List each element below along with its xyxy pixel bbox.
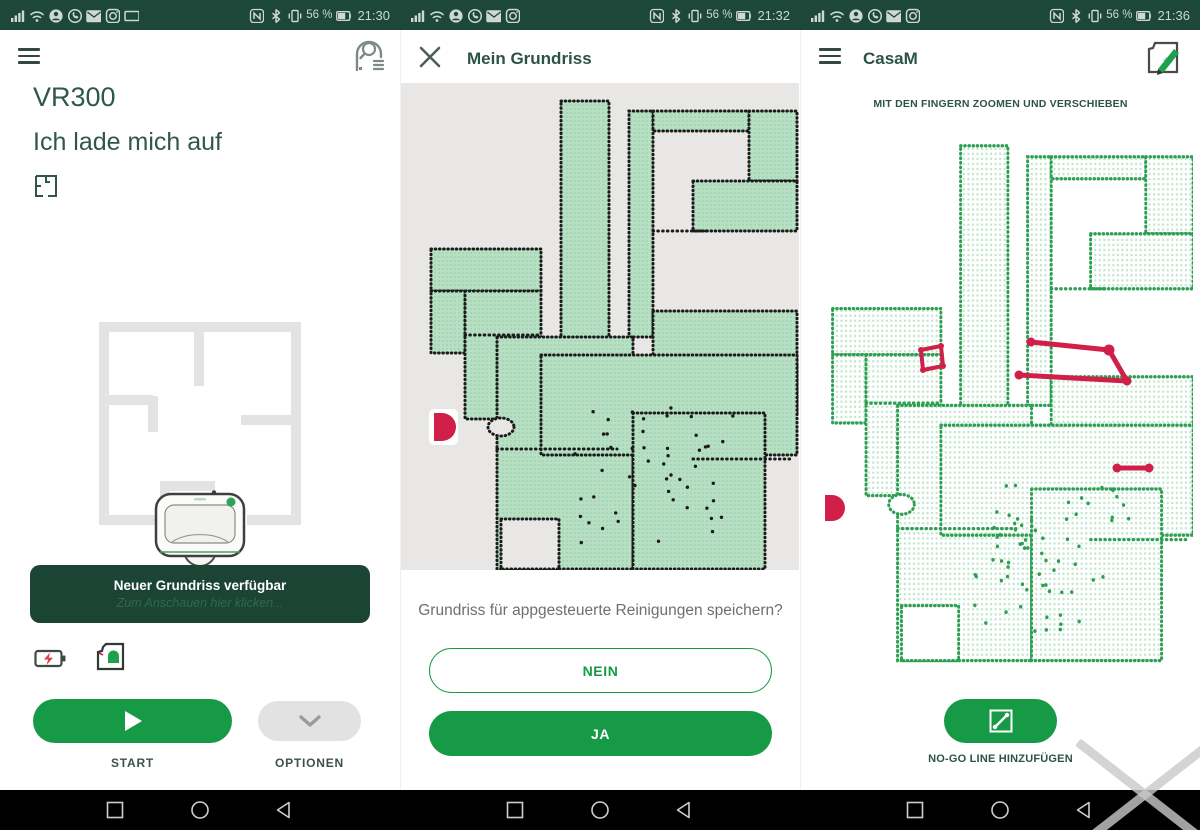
- start-label: START: [33, 756, 232, 770]
- close-icon[interactable]: [419, 46, 441, 68]
- options-button[interactable]: [258, 701, 361, 741]
- recents-button[interactable]: [905, 800, 925, 820]
- back-button[interactable]: [674, 800, 694, 820]
- map-available-icon[interactable]: [96, 642, 125, 671]
- wifi-icon: [29, 8, 44, 23]
- bluetooth-icon: [668, 8, 683, 23]
- back-button[interactable]: [1074, 800, 1094, 820]
- start-button[interactable]: [33, 699, 232, 743]
- floorplan-icon[interactable]: [33, 173, 59, 199]
- statusbar-screen-2: 56 % 21:32: [400, 0, 800, 30]
- recents-button[interactable]: [505, 800, 525, 820]
- menu-icon[interactable]: [18, 48, 40, 64]
- screen-robot-status: VR300 Ich lade mich auf Neuer Grundriss …: [0, 30, 400, 790]
- bluetooth-icon: [268, 8, 283, 23]
- new-floorplan-banner[interactable]: Neuer Grundriss verfügbar Zum Anschauen …: [30, 565, 370, 623]
- battery-percent: 56 %: [706, 9, 732, 21]
- whatsapp-icon: [67, 8, 82, 23]
- signal-icon: [810, 8, 825, 23]
- add-nogo-line-button[interactable]: [944, 699, 1057, 743]
- page-title: CasaM: [863, 49, 918, 69]
- edit-map-icon[interactable]: [1145, 40, 1181, 76]
- wifi-icon: [429, 8, 444, 23]
- instagram-icon: [105, 8, 120, 23]
- save-question: Grundriss für appgesteuerte Reinigungen …: [401, 602, 800, 620]
- home-button[interactable]: [990, 800, 1010, 820]
- battery-icon: [736, 8, 751, 23]
- add-nogo-line-label: NO-GO LINE HINZUFÜGEN: [801, 753, 1200, 765]
- android-navbar: [0, 790, 1200, 830]
- instagram-icon: [905, 8, 920, 23]
- nogo-map[interactable]: [809, 120, 1193, 670]
- recents-button[interactable]: [105, 800, 125, 820]
- statusbar-screen-3: 56 % 21:36: [800, 0, 1200, 30]
- play-icon: [123, 710, 143, 732]
- mail-icon: [86, 8, 101, 23]
- screen-nogo-lines: CasaM MIT DEN FINGERN ZOOMEN UND VERSCHI…: [800, 30, 1200, 790]
- nfc-icon: [649, 8, 664, 23]
- wifi-icon: [829, 8, 844, 23]
- nfc-icon: [249, 8, 264, 23]
- ja-button[interactable]: JA: [429, 711, 772, 756]
- pinch-zoom-hint: MIT DEN FINGERN ZOOMEN UND VERSCHIEBEN: [801, 98, 1200, 110]
- tablet-icon: [124, 8, 139, 23]
- vibrate-icon: [287, 8, 302, 23]
- mail-icon: [886, 8, 901, 23]
- notification-person-icon: [448, 8, 463, 23]
- home-button[interactable]: [590, 800, 610, 820]
- page-title: Mein Grundriss: [467, 49, 592, 69]
- notification-person-icon: [848, 8, 863, 23]
- menu-icon[interactable]: [819, 48, 841, 64]
- signal-icon: [410, 8, 425, 23]
- robot-position-marker: [429, 409, 458, 445]
- floorplan-map[interactable]: [401, 83, 799, 570]
- whatsapp-icon: [467, 8, 482, 23]
- battery-percent: 56 %: [306, 9, 332, 21]
- notification-person-icon: [48, 8, 63, 23]
- banner-subtitle: Zum Anschauen hier klicken...: [117, 596, 284, 610]
- robot-status-text: Ich lade mich auf: [33, 128, 222, 157]
- whatsapp-icon: [867, 8, 882, 23]
- battery-percent: 56 %: [1106, 9, 1132, 21]
- statusbar-screen-1: 56 % 21:30: [0, 0, 400, 30]
- vibrate-icon: [687, 8, 702, 23]
- robot-vacuum-image: [150, 490, 250, 570]
- robot-name: VR300: [33, 82, 116, 113]
- vibrate-icon: [1087, 8, 1102, 23]
- battery-icon: [1136, 8, 1151, 23]
- clock: 21:32: [757, 8, 790, 23]
- banner-title: Neuer Grundriss verfügbar: [114, 578, 287, 593]
- clock: 21:36: [1157, 8, 1190, 23]
- robot-list-icon[interactable]: [352, 38, 388, 76]
- instagram-icon: [505, 8, 520, 23]
- bluetooth-icon: [1068, 8, 1083, 23]
- nfc-icon: [1049, 8, 1064, 23]
- mail-icon: [486, 8, 501, 23]
- robot-position-marker: [821, 492, 849, 524]
- screen-floorplan-save: Mein Grundriss Grundriss für appgesteuer…: [400, 30, 800, 790]
- signal-icon: [10, 8, 25, 23]
- nein-button[interactable]: NEIN: [429, 648, 772, 693]
- battery-charging-icon: [34, 647, 67, 670]
- options-label: OPTIONEN: [258, 756, 361, 770]
- clock: 21:30: [357, 8, 390, 23]
- battery-icon: [336, 8, 351, 23]
- back-button[interactable]: [274, 800, 294, 820]
- chevron-down-icon: [299, 715, 321, 727]
- nogo-line-icon: [989, 709, 1013, 733]
- home-button[interactable]: [190, 800, 210, 820]
